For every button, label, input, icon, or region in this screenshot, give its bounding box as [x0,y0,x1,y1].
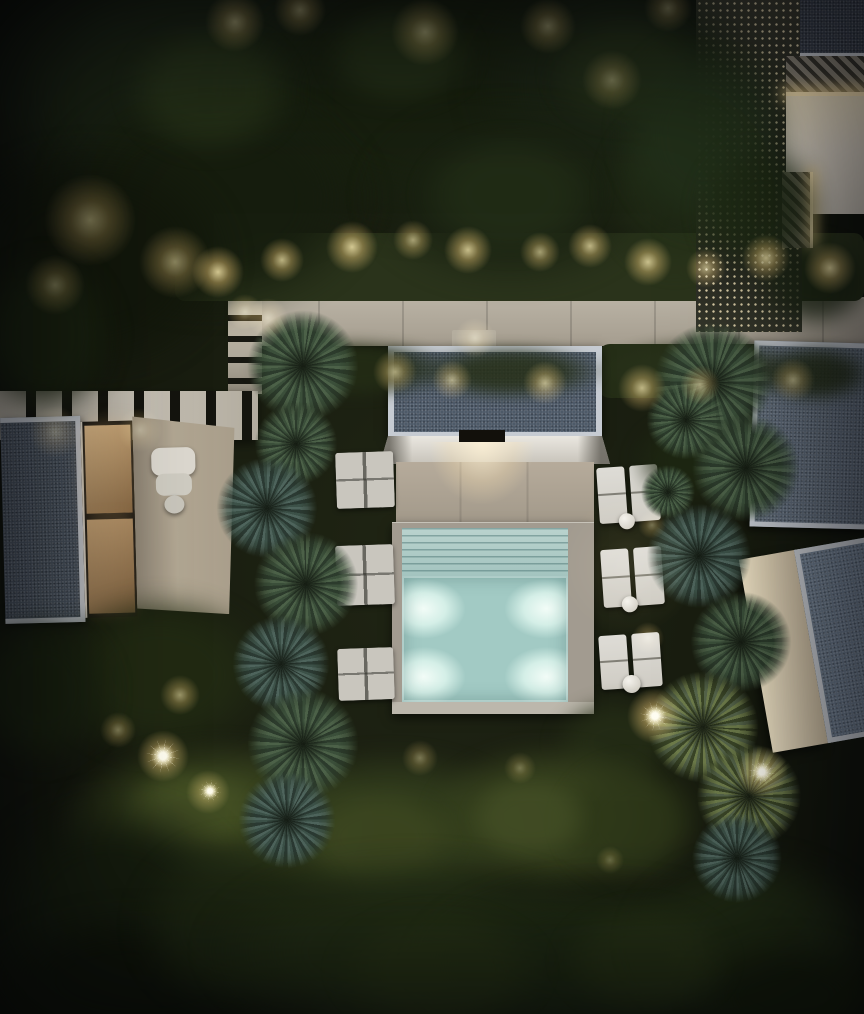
palm-core [653,477,683,507]
tree-canopy [0,910,300,1014]
garden-light-glow [160,675,200,715]
garden-light-glow [644,0,692,32]
tree-canopy [425,740,675,895]
sun-lounger-pair-left [337,647,395,701]
garden-light-glow [520,0,576,54]
cushion-seam [598,493,626,497]
left-pavilion [0,408,244,628]
side-table [621,596,638,613]
garden-light-glow [205,0,265,52]
tree-canopy [220,0,680,240]
tree-canopy [0,0,440,260]
lit-interior-room [84,425,132,514]
tree-canopy [0,610,120,770]
tree-canopy [320,0,480,110]
tree-canopy [200,850,630,1014]
left-pavilion-roof [0,416,85,624]
palm-tree [642,376,730,464]
tree-canopy [465,775,595,860]
sun-lounger-pair-left [335,451,395,509]
palm-core [670,527,728,585]
entrance-recess [459,430,505,442]
garden-light-glow [25,255,85,315]
outdoor-sofa-seat [156,473,193,496]
tree-canopy [555,900,735,1014]
main-villa-roof [388,346,602,438]
palm-core [277,555,335,613]
pool-water [402,576,568,702]
garden-light-glow [186,770,230,814]
tree-canopy [330,905,550,1014]
spotlight-starburst [198,779,222,803]
top-right-gravel-roof [800,0,864,56]
palm-core [272,335,334,397]
spotlight-starburst [145,738,181,774]
garden-light-glow [504,752,536,784]
palm-tree [638,462,698,522]
garden-light-glow [582,50,642,110]
palm-core [716,438,776,498]
garden-light-glow [137,730,189,782]
palm-core [713,614,769,670]
palm-core [712,833,762,883]
palm-core [664,398,708,442]
side-table [622,674,641,693]
palm-tree [687,808,787,908]
cushion-seam [600,660,628,664]
garden-light-glow [100,712,136,748]
tree-canopy [120,20,300,160]
tree-canopy [545,10,705,130]
diagonal-slat-canopy [786,56,864,94]
led-strip-light-2 [810,172,813,248]
entrance-light-glow [430,442,534,504]
pool-steps [402,528,568,576]
sun-lounger-group [598,632,664,690]
palm-tree [233,766,341,874]
garden-light-glow [391,0,459,66]
palm-core [260,793,314,847]
outdoor-sofa-back [151,447,196,476]
palm-core [239,480,295,536]
tree-canopy [0,790,260,1014]
cushion-seam [633,657,661,661]
garden-light-glow [44,174,136,266]
garden-light-glow [402,740,438,776]
garden-light-glow [274,0,326,36]
garden-light-glow [596,846,624,874]
pool-outer-rim [392,702,594,714]
side-table [618,513,635,530]
aerial-night-scene [0,0,864,1014]
cushion-seam [602,575,630,579]
diagonal-slat-canopy-2 [782,172,812,248]
lit-interior-room-2 [87,519,135,614]
tree-canopy [690,940,864,1014]
